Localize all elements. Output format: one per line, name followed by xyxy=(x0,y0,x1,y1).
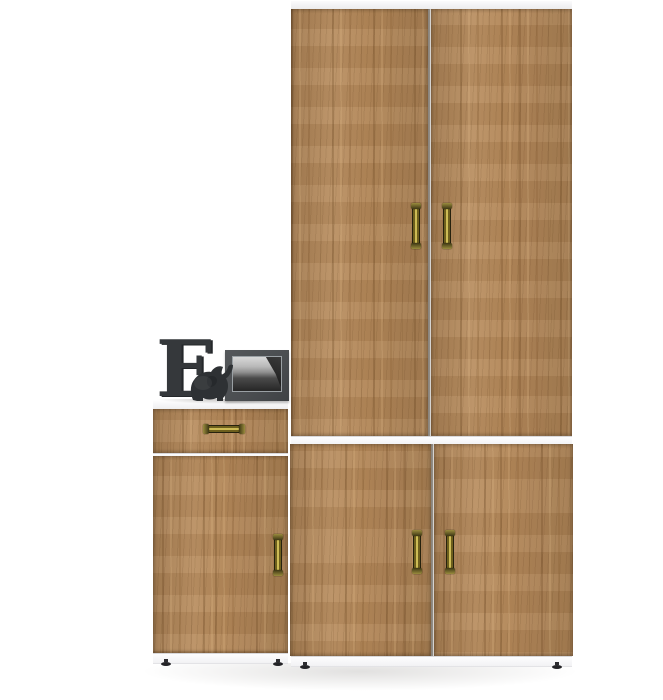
cabinet-foot-right xyxy=(273,662,283,666)
cabinet-door-handle xyxy=(273,535,283,575)
hall-cabinet xyxy=(153,400,288,668)
cabinet-drawer xyxy=(153,409,288,453)
wardrobe-foot-left xyxy=(300,665,310,669)
tall-wardrobe xyxy=(291,1,572,670)
wardrobe-lower-section xyxy=(290,444,573,656)
wardrobe-base-panel xyxy=(291,656,572,667)
product-stage: E xyxy=(0,0,663,700)
wardrobe-upper-door-left xyxy=(291,9,428,436)
photo-cliff-detail xyxy=(259,357,281,388)
cabinet-door xyxy=(153,456,288,653)
elephant-figurine-icon xyxy=(188,363,238,402)
lower-right-door-handle xyxy=(445,531,455,573)
wardrobe-lower-door-left xyxy=(290,444,431,656)
cabinet-base-panel xyxy=(153,653,288,664)
upper-left-door-handle xyxy=(411,204,421,248)
drawer-handle xyxy=(204,424,244,434)
wardrobe-upper-section xyxy=(291,9,572,436)
wardrobe-lower-door-right xyxy=(434,444,573,656)
upper-right-door-handle xyxy=(442,204,452,248)
elephant-figurine xyxy=(188,363,238,402)
lower-left-door-handle xyxy=(412,531,422,573)
landscape-photo xyxy=(232,356,282,392)
wardrobe-upper-door-right xyxy=(431,9,572,436)
cabinet-foot-left xyxy=(161,662,171,666)
wardrobe-foot-right xyxy=(552,665,562,669)
